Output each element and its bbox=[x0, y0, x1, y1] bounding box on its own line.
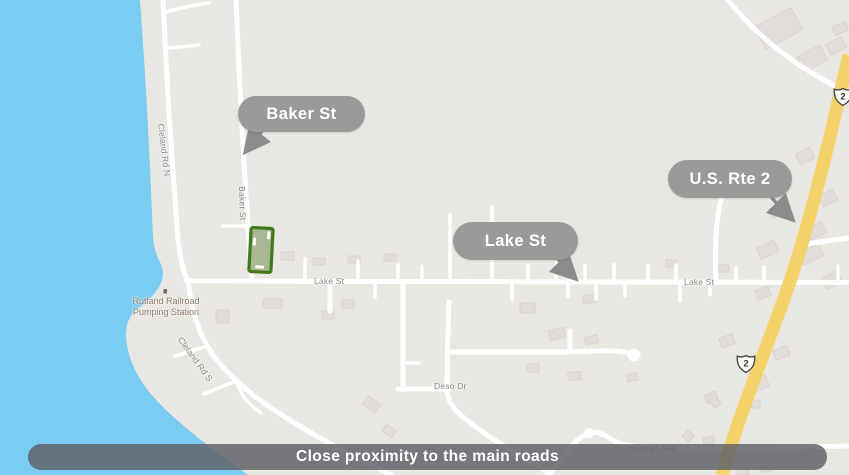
route-shield-icon: 2 bbox=[833, 87, 849, 107]
poi-label-line2: Pumping Station bbox=[122, 307, 210, 318]
street-label-baker-st: Baker St bbox=[237, 186, 248, 221]
callout-us-rte-2: U.S. Rte 2 bbox=[668, 160, 792, 198]
callout-us-rte-2-label: U.S. Rte 2 bbox=[689, 170, 770, 189]
cul-de-sac bbox=[628, 349, 641, 362]
street-label-lake-st-west: Lake St bbox=[314, 276, 344, 286]
callout-baker-st: Baker St bbox=[238, 96, 365, 132]
route-shield-number: 2 bbox=[840, 92, 845, 103]
caption-bar: Close proximity to the main roads bbox=[28, 444, 827, 470]
street-label-deso-dr: Deso Dr bbox=[434, 381, 467, 391]
callout-lake-st: Lake St bbox=[453, 222, 578, 260]
poi-label-rutland-pumping-station: Rutland Railroad Pumping Station bbox=[122, 296, 210, 317]
caption-text: Close proximity to the main roads bbox=[296, 448, 559, 466]
route-shield-icon: 2 bbox=[736, 354, 756, 374]
road-end bbox=[584, 428, 594, 438]
street-label-lake-st-east: Lake St bbox=[684, 277, 714, 287]
callout-lake-st-label: Lake St bbox=[485, 232, 547, 251]
highlighted-parcel bbox=[249, 227, 273, 272]
map-graphics bbox=[0, 0, 849, 475]
route-shield-number: 2 bbox=[743, 359, 748, 370]
map-canvas: Cleland Rd N Baker St Lake St Lake St Cl… bbox=[0, 0, 849, 475]
poi-label-line1: Rutland Railroad bbox=[122, 296, 210, 307]
callout-baker-st-label: Baker St bbox=[266, 105, 336, 124]
poi-marker bbox=[164, 289, 168, 294]
